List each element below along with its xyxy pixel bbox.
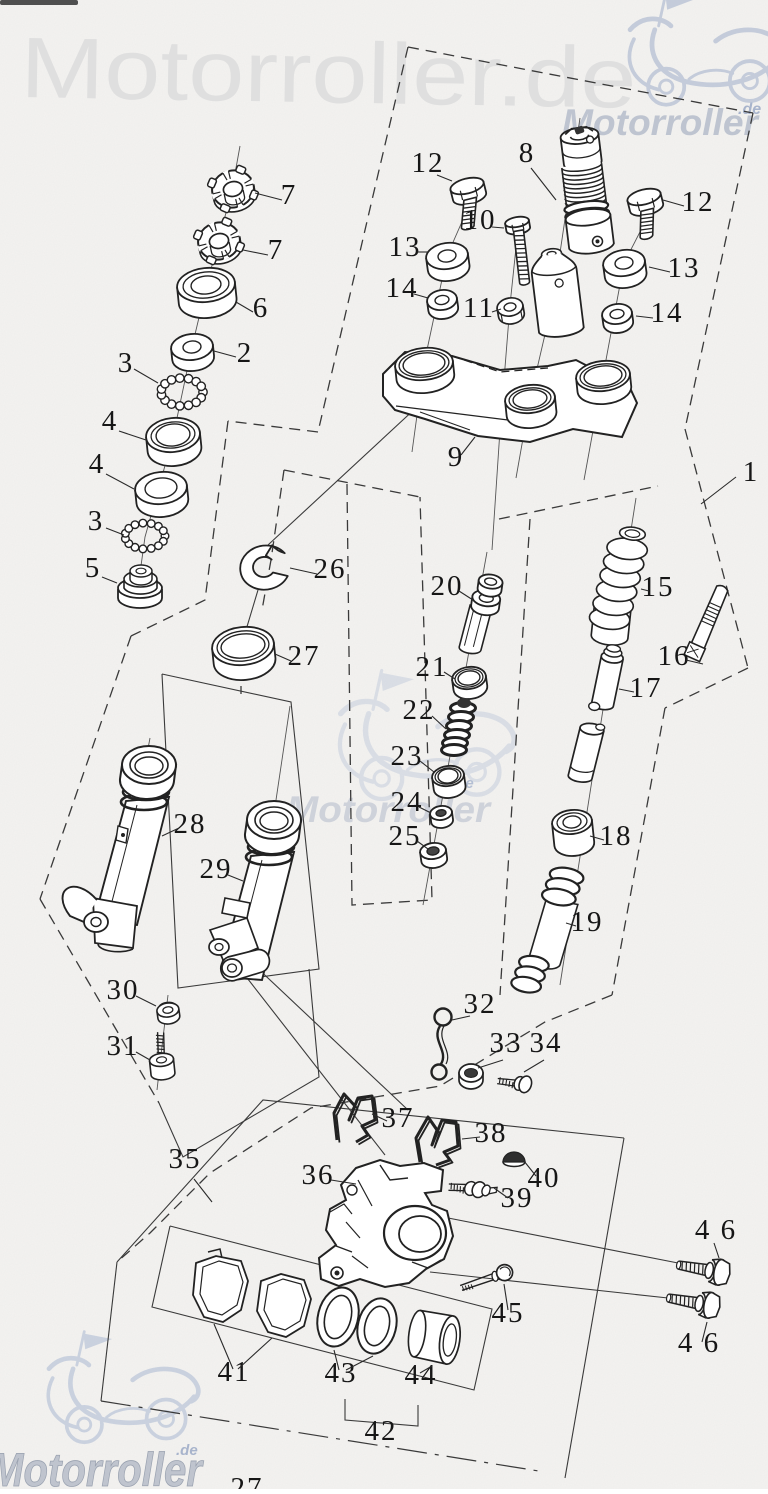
svg-text:39: 39 [501, 1182, 534, 1214]
svg-text:35: 35 [169, 1143, 202, 1175]
svg-text:6: 6 [253, 292, 270, 324]
svg-text:44: 44 [405, 1359, 438, 1391]
svg-text:5: 5 [85, 552, 102, 584]
svg-text:8: 8 [519, 137, 536, 169]
svg-text:41: 41 [218, 1356, 251, 1388]
svg-text:Motorroller: Motorroller [0, 1443, 204, 1489]
svg-text:9: 9 [448, 441, 465, 473]
svg-text:14: 14 [651, 297, 684, 329]
svg-text:13: 13 [389, 231, 422, 263]
svg-text:.de: .de [738, 101, 761, 118]
svg-text:19: 19 [571, 906, 604, 938]
svg-text:34: 34 [530, 1027, 563, 1059]
svg-text:4: 4 [102, 405, 119, 437]
svg-text:12: 12 [682, 186, 715, 218]
svg-text:18: 18 [600, 820, 633, 852]
svg-text:28: 28 [174, 808, 207, 840]
svg-text:14: 14 [386, 272, 419, 304]
svg-text:4 6: 4 6 [678, 1327, 720, 1359]
svg-text:42: 42 [365, 1415, 398, 1447]
svg-text:24: 24 [391, 786, 424, 818]
svg-text:22: 22 [403, 694, 436, 726]
svg-text:36: 36 [302, 1159, 335, 1191]
svg-text:13: 13 [668, 252, 701, 284]
svg-text:43: 43 [325, 1357, 358, 1389]
svg-text:23: 23 [391, 740, 424, 772]
svg-text:26: 26 [314, 553, 347, 585]
svg-text:2: 2 [237, 337, 254, 369]
svg-text:3: 3 [88, 505, 105, 537]
svg-text:7: 7 [268, 234, 285, 266]
svg-text:30: 30 [107, 974, 140, 1006]
svg-text:.de: .de [176, 1442, 198, 1459]
svg-text:1: 1 [743, 456, 760, 488]
svg-text:4: 4 [89, 448, 106, 480]
svg-text:3: 3 [118, 347, 135, 379]
svg-text:20: 20 [431, 570, 464, 602]
svg-text:12: 12 [412, 147, 445, 179]
svg-text:45: 45 [492, 1297, 525, 1329]
svg-text:15: 15 [642, 571, 675, 603]
svg-text:32: 32 [464, 988, 497, 1020]
svg-text:11: 11 [463, 292, 495, 324]
svg-text:4 6: 4 6 [695, 1214, 737, 1246]
svg-text:27: 27 [231, 1472, 264, 1489]
svg-text:27: 27 [288, 640, 321, 672]
svg-text:31: 31 [107, 1030, 140, 1062]
svg-text:29: 29 [200, 853, 233, 885]
svg-text:25: 25 [389, 820, 422, 852]
svg-text:37: 37 [382, 1102, 415, 1134]
svg-text:38: 38 [475, 1117, 508, 1149]
svg-text:33: 33 [490, 1027, 523, 1059]
svg-text:16: 16 [658, 640, 691, 672]
svg-text:17: 17 [630, 672, 663, 704]
svg-text:Motorroller.de: Motorroller.de [20, 20, 638, 127]
svg-text:10: 10 [464, 204, 497, 236]
svg-text:7: 7 [281, 179, 298, 211]
svg-text:21: 21 [416, 651, 449, 683]
